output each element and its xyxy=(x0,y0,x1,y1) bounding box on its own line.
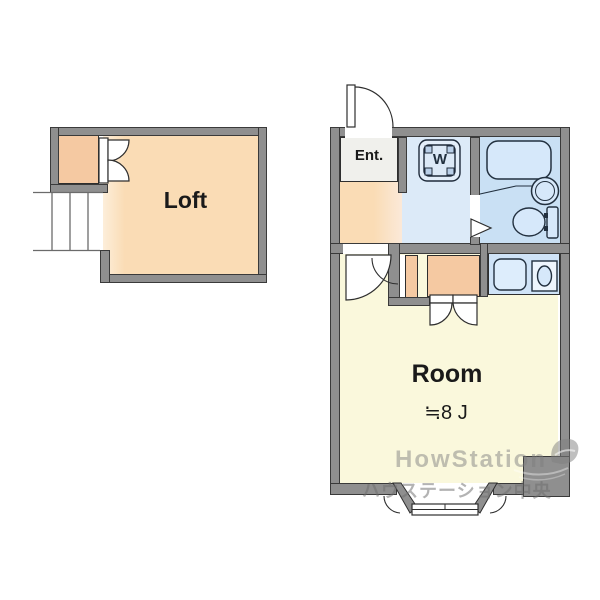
toilet-icon xyxy=(513,207,558,238)
watermark-brand: HowStation xyxy=(395,446,547,474)
stove-icon xyxy=(532,261,557,291)
floor-plan-canvas: Loft Ent. W Room ≒8 J HowStation ハウステーショ… xyxy=(0,0,600,600)
loft-room-label: Loft xyxy=(138,187,233,214)
fixtures-overlay xyxy=(0,0,600,600)
room-door-icon xyxy=(343,244,398,300)
washbasin-icon xyxy=(532,178,559,205)
room-size-label: ≒8 J xyxy=(396,400,496,425)
kitchen-sink-icon xyxy=(494,259,526,290)
watermark-subtitle: ハウステーション中央 xyxy=(362,477,552,503)
stairs-icon xyxy=(33,192,103,251)
loft-closet-door-icon xyxy=(99,138,129,183)
entrance-door-icon xyxy=(345,85,393,138)
room-label: Room xyxy=(397,360,497,389)
bathroom-door-icon xyxy=(470,195,491,237)
washing-machine-label: W xyxy=(428,151,452,168)
entrance-label: Ent. xyxy=(344,147,394,164)
room-closet-door-icon xyxy=(430,295,477,325)
